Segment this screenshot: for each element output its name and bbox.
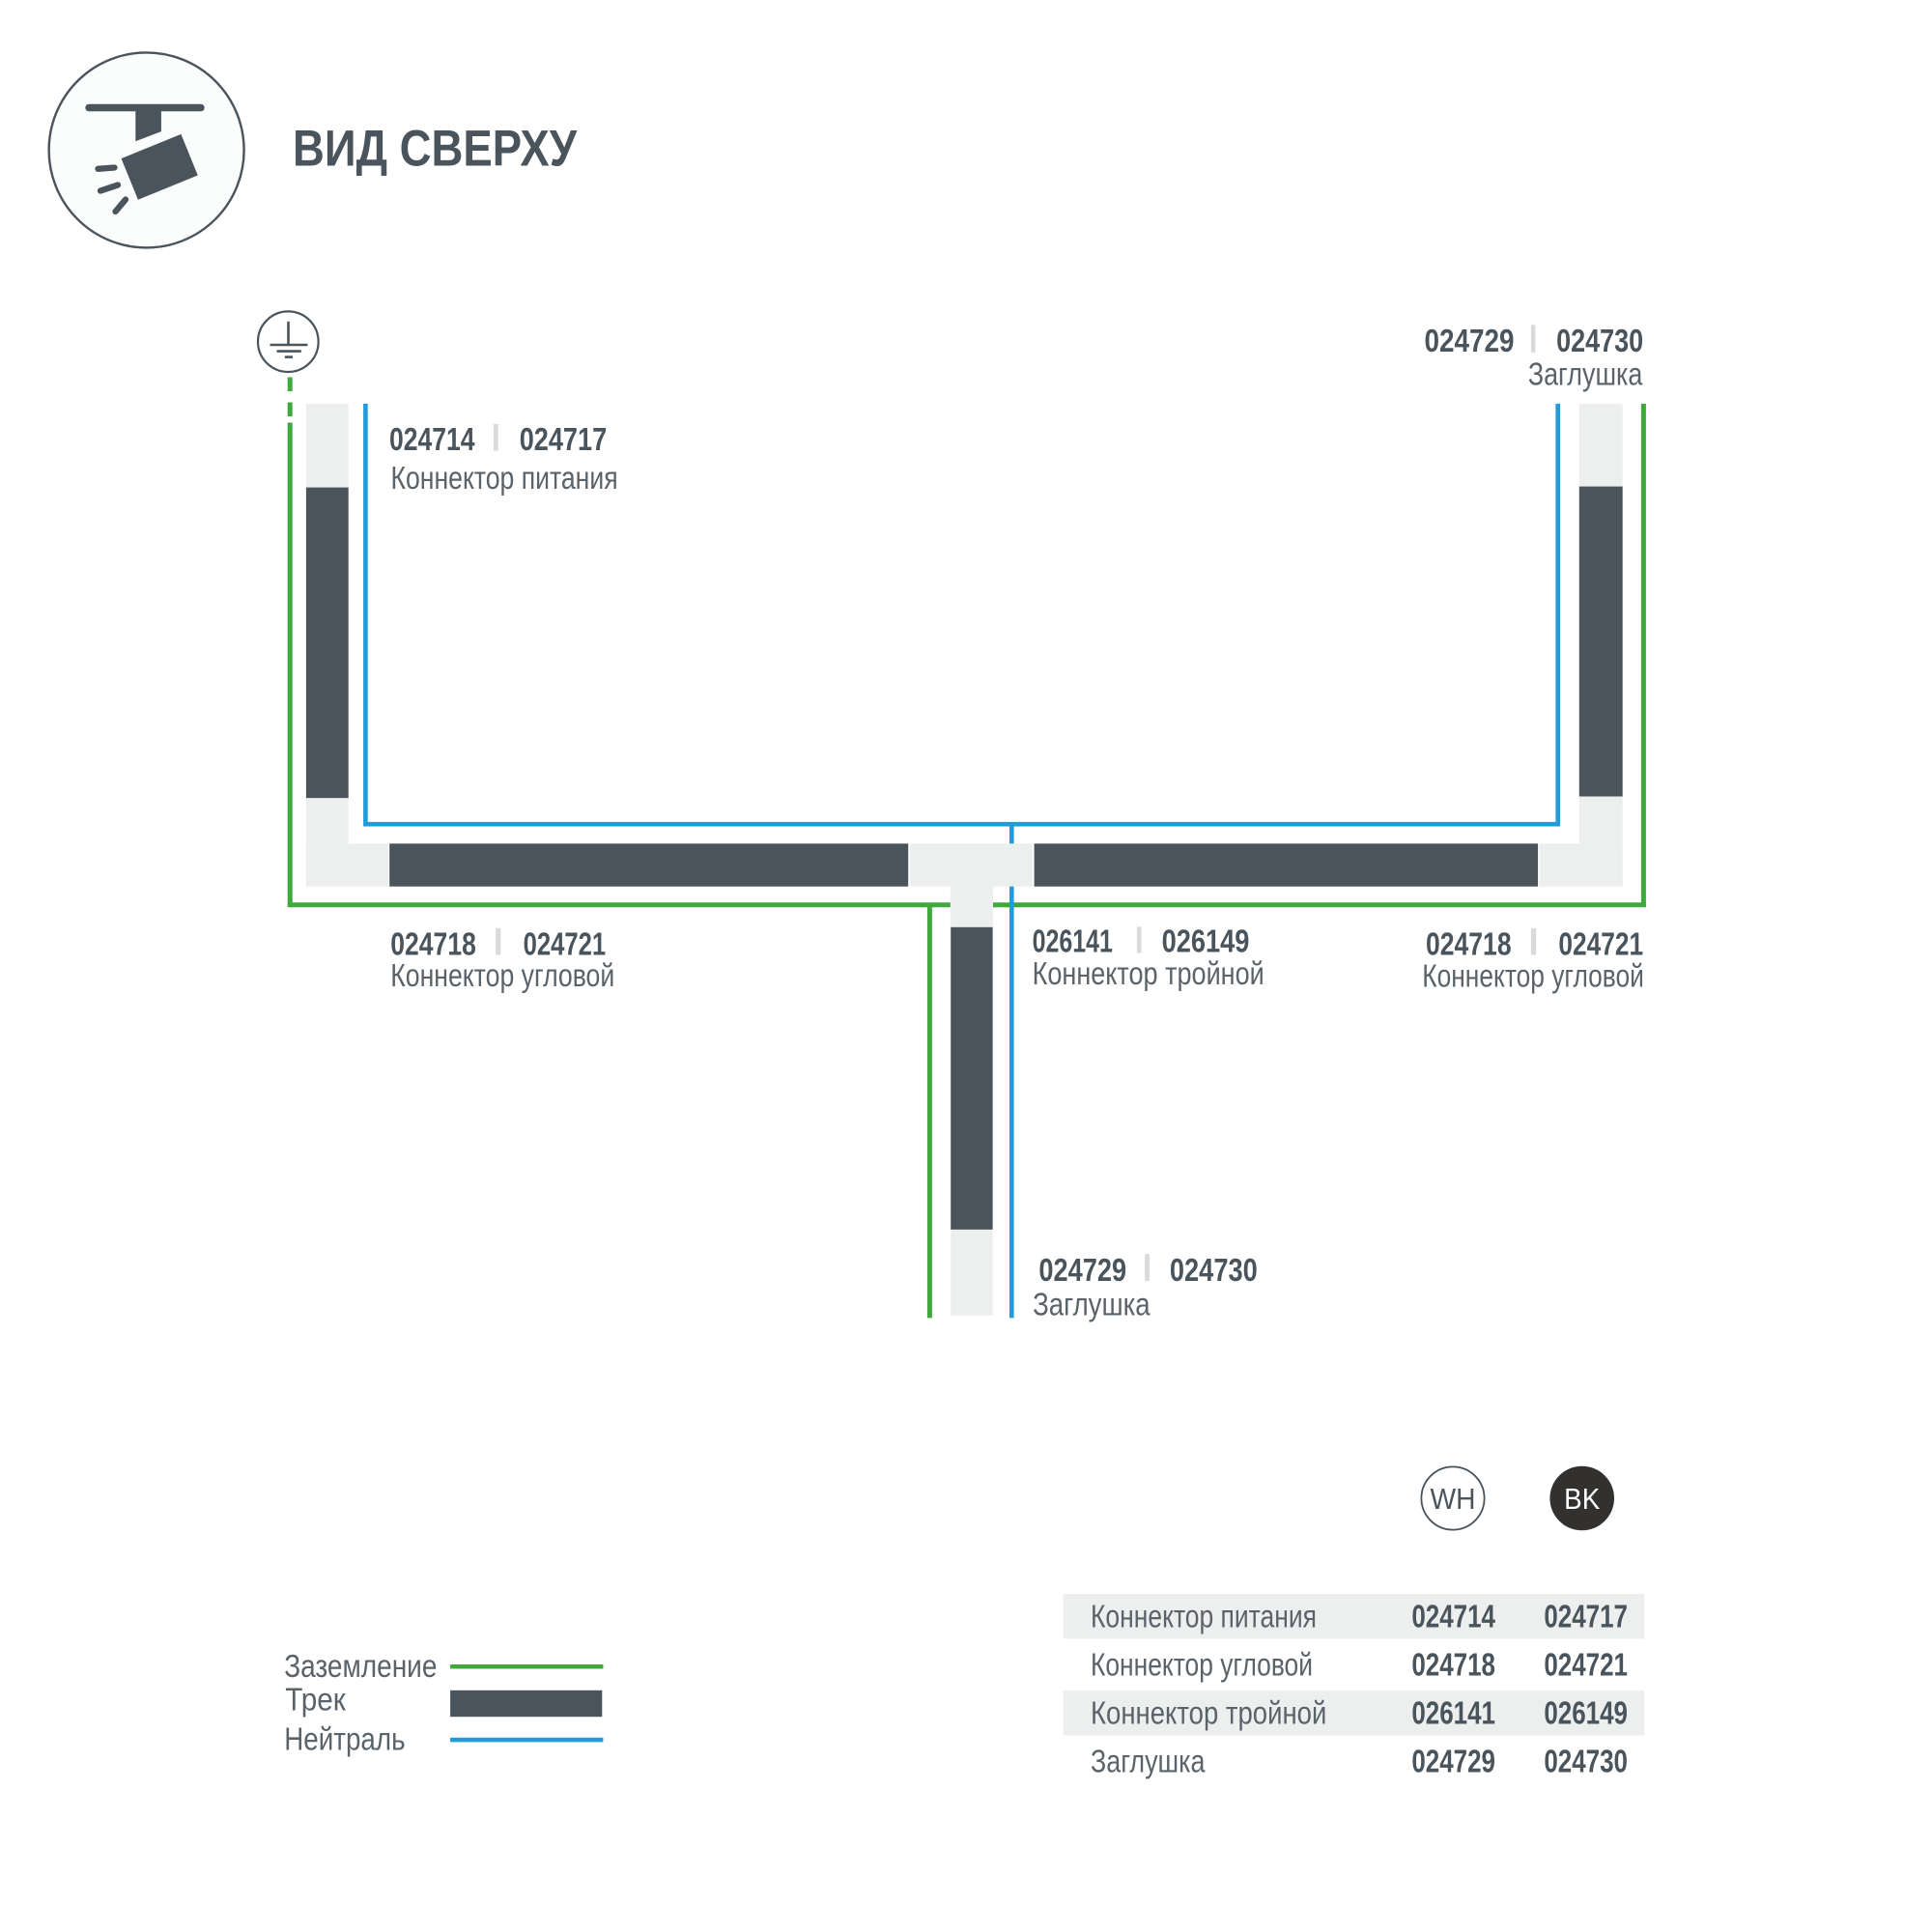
svg-text:Заглушка: Заглушка xyxy=(1091,1745,1206,1779)
svg-text:Коннектор тройной: Коннектор тройной xyxy=(1033,957,1264,992)
svg-text:024721: 024721 xyxy=(1558,927,1643,962)
svg-text:026149: 026149 xyxy=(1544,1696,1628,1732)
svg-text:Заглушка: Заглушка xyxy=(1528,357,1643,392)
svg-text:026141: 026141 xyxy=(1033,924,1113,959)
svg-text:024721: 024721 xyxy=(524,926,607,962)
svg-text:Коннектор питания: Коннектор питания xyxy=(391,462,618,497)
svg-text:WH: WH xyxy=(1431,1483,1476,1517)
svg-text:Коннектор тройной: Коннектор тройной xyxy=(1091,1695,1326,1731)
svg-text:Коннектор питания: Коннектор питания xyxy=(1091,1600,1317,1634)
svg-text:024729: 024729 xyxy=(1411,1745,1495,1780)
svg-text:024717: 024717 xyxy=(520,423,607,458)
svg-text:024729: 024729 xyxy=(1038,1254,1126,1289)
svg-text:024729: 024729 xyxy=(1425,324,1515,359)
svg-text:Коннектор угловой: Коннектор угловой xyxy=(390,958,614,993)
svg-text:Коннектор угловой: Коннектор угловой xyxy=(1091,1648,1313,1683)
svg-text:Трек: Трек xyxy=(285,1682,346,1718)
svg-text:Нейтраль: Нейтраль xyxy=(284,1721,405,1757)
svg-text:ВИД СВЕРХУ: ВИД СВЕРХУ xyxy=(293,122,578,178)
svg-text:024718: 024718 xyxy=(390,927,476,962)
svg-text:024714: 024714 xyxy=(1411,1600,1495,1635)
svg-text:024718: 024718 xyxy=(1426,927,1512,962)
svg-text:Коннектор угловой: Коннектор угловой xyxy=(1422,959,1644,994)
svg-text:026149: 026149 xyxy=(1162,924,1250,959)
svg-text:024730: 024730 xyxy=(1170,1254,1258,1289)
svg-text:024718: 024718 xyxy=(1411,1648,1495,1684)
svg-text:024730: 024730 xyxy=(1544,1745,1628,1780)
svg-text:024730: 024730 xyxy=(1556,325,1643,359)
svg-text:Заземление: Заземление xyxy=(284,1649,437,1685)
svg-text:BK: BK xyxy=(1564,1483,1600,1517)
svg-text:024717: 024717 xyxy=(1544,1600,1628,1635)
svg-text:024714: 024714 xyxy=(389,422,475,457)
svg-text:026141: 026141 xyxy=(1411,1696,1495,1732)
svg-text:Заглушка: Заглушка xyxy=(1033,1287,1151,1322)
svg-text:024721: 024721 xyxy=(1544,1648,1628,1684)
